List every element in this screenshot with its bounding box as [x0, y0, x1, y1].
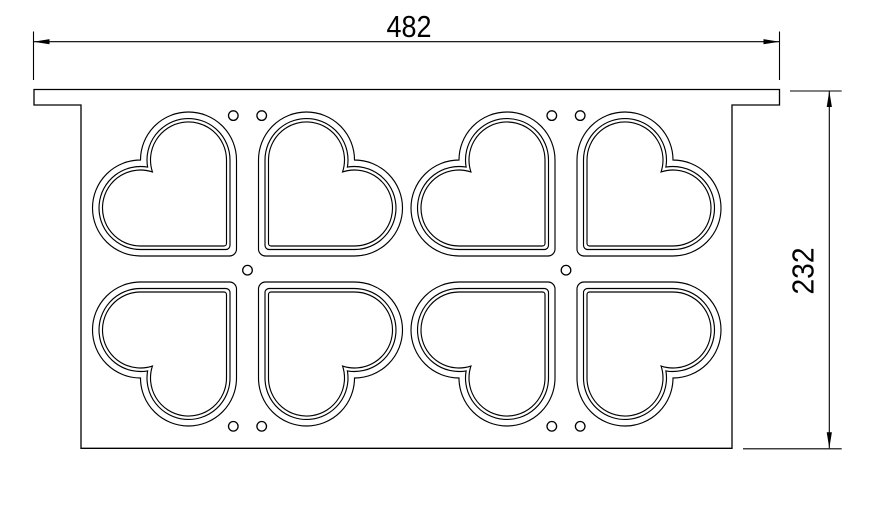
- tray-outline: [34, 90, 780, 449]
- dimension-arrowhead: [34, 39, 50, 44]
- heart-contour-outer: [93, 282, 237, 426]
- technical-drawing-canvas: 482 232: [0, 0, 877, 506]
- heart-contour-outer: [577, 282, 721, 426]
- heart-contour-middle: [99, 119, 230, 250]
- heart-cavity: [411, 112, 555, 256]
- dim-width-label: 482: [387, 9, 432, 44]
- heart-contour-middle: [584, 119, 715, 250]
- vent-hole: [257, 422, 267, 432]
- heart-contour-inner: [421, 292, 545, 416]
- vent-hole: [561, 265, 571, 275]
- heart-contour-middle: [418, 119, 549, 250]
- heart-contour-outer: [93, 112, 237, 256]
- heart-contour-outer: [259, 112, 403, 256]
- heart-contour-middle: [99, 289, 230, 420]
- heart-cavity: [259, 112, 403, 256]
- heart-contour-middle: [584, 289, 715, 420]
- heart-cavity: [577, 282, 721, 426]
- heart-contour-outer: [411, 282, 555, 426]
- heart-cluster: [93, 111, 403, 431]
- heart-cavity: [93, 112, 237, 256]
- vent-hole: [547, 111, 557, 121]
- drawing-geometry: [34, 32, 842, 449]
- heart-contour-middle: [418, 289, 549, 420]
- heart-contour-inner: [269, 122, 393, 246]
- vent-hole: [547, 422, 557, 432]
- dim-height-label: 232: [786, 248, 821, 295]
- vent-hole: [575, 111, 585, 121]
- heart-contour-inner: [587, 292, 711, 416]
- vent-hole: [229, 111, 239, 121]
- heart-contour-inner: [587, 122, 711, 246]
- vent-hole: [243, 265, 253, 275]
- technical-drawing-svg: 482 232: [0, 0, 877, 506]
- heart-contour-outer: [411, 112, 555, 256]
- heart-cavity: [93, 282, 237, 426]
- heart-contour-inner: [421, 122, 545, 246]
- heart-contour-middle: [265, 119, 396, 250]
- heart-cluster: [411, 111, 721, 431]
- vent-hole: [575, 422, 585, 432]
- vent-hole: [257, 111, 267, 121]
- heart-contour-outer: [577, 112, 721, 256]
- dimension-arrowhead: [827, 91, 832, 107]
- heart-cavity: [411, 282, 555, 426]
- dimension-arrowhead: [764, 39, 780, 44]
- heart-contour-inner: [102, 122, 226, 246]
- vent-hole: [229, 422, 239, 432]
- heart-cavity: [577, 112, 721, 256]
- heart-contour-inner: [269, 292, 393, 416]
- heart-contour-middle: [265, 289, 396, 420]
- dimension-arrowhead: [827, 432, 832, 448]
- heart-cavity: [259, 282, 403, 426]
- heart-contour-inner: [102, 292, 226, 416]
- heart-contour-outer: [259, 282, 403, 426]
